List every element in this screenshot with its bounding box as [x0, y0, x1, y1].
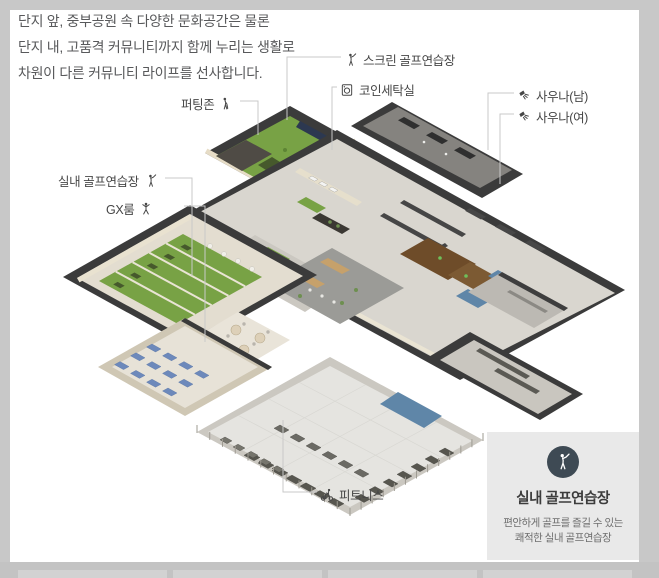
- label-sauna-men: 사우나(남): [517, 86, 588, 105]
- shower-icon: [517, 89, 531, 103]
- card-title: 실내 골프연습장: [487, 487, 639, 508]
- spin-bike-icon: [320, 488, 334, 502]
- golf-swing-icon: [554, 453, 572, 471]
- label-text: GX룸: [106, 199, 134, 218]
- label-putting-zone: 퍼팅존: [181, 94, 233, 113]
- carousel-thumb[interactable]: [18, 570, 167, 578]
- label-text: 코인세탁실: [359, 80, 415, 99]
- intro-text: 단지 앞, 중부공원 속 다양한 문화공간은 물론 단지 내, 고품격 커뮤니티…: [18, 8, 295, 86]
- card-desc-line: 쾌적한 실내 골프연습장: [515, 532, 611, 544]
- golf-swing-icon: [344, 53, 358, 67]
- card-desc-line: 편안하게 골프를 즐길 수 있는: [503, 517, 623, 529]
- label-coin-laundry: 코인세탁실: [340, 80, 415, 99]
- carousel-thumb[interactable]: [328, 570, 477, 578]
- shower-icon: [517, 110, 531, 124]
- card-description: 편안하게 골프를 즐길 수 있는 쾌적한 실내 골프연습장: [487, 516, 639, 546]
- carousel-thumb[interactable]: [173, 570, 322, 578]
- community-floorplan-page: { "intro": { "lines": [ "단지 앞, 중부공원 속 다양…: [0, 0, 659, 578]
- golf-swing-icon: [144, 174, 158, 188]
- carousel-thumb[interactable]: [483, 570, 632, 578]
- intro-line: 단지 앞, 중부공원 속 다양한 문화공간은 물론: [18, 8, 295, 34]
- label-screen-golf: 스크린 골프연습장: [344, 50, 455, 69]
- golf-putting-icon: [219, 97, 233, 111]
- label-text: 피트니스: [339, 485, 383, 504]
- washing-machine-icon: [340, 83, 354, 97]
- label-text: 사우나(여): [536, 107, 588, 126]
- label-gx-room: GX룸: [106, 199, 153, 218]
- carousel-strip: [0, 562, 659, 578]
- label-indoor-golf: 실내 골프연습장: [58, 171, 158, 190]
- aerobics-icon: [139, 202, 153, 216]
- label-sauna-women: 사우나(여): [517, 107, 588, 126]
- intro-line: 차원이 다른 커뮤니티 라이프를 선사합니다.: [18, 60, 295, 86]
- intro-line: 단지 내, 고품격 커뮤니티까지 함께 누리는 생활로: [18, 34, 295, 60]
- label-text: 퍼팅존: [181, 94, 214, 113]
- label-text: 사우나(남): [536, 86, 588, 105]
- card-icon-circle: [547, 446, 579, 478]
- label-text: 스크린 골프연습장: [363, 50, 455, 69]
- feature-card-indoor-golf: 실내 골프연습장 편안하게 골프를 즐길 수 있는 쾌적한 실내 골프연습장: [487, 432, 639, 560]
- label-text: 실내 골프연습장: [58, 171, 139, 190]
- label-fitness: 피트니스: [320, 485, 383, 504]
